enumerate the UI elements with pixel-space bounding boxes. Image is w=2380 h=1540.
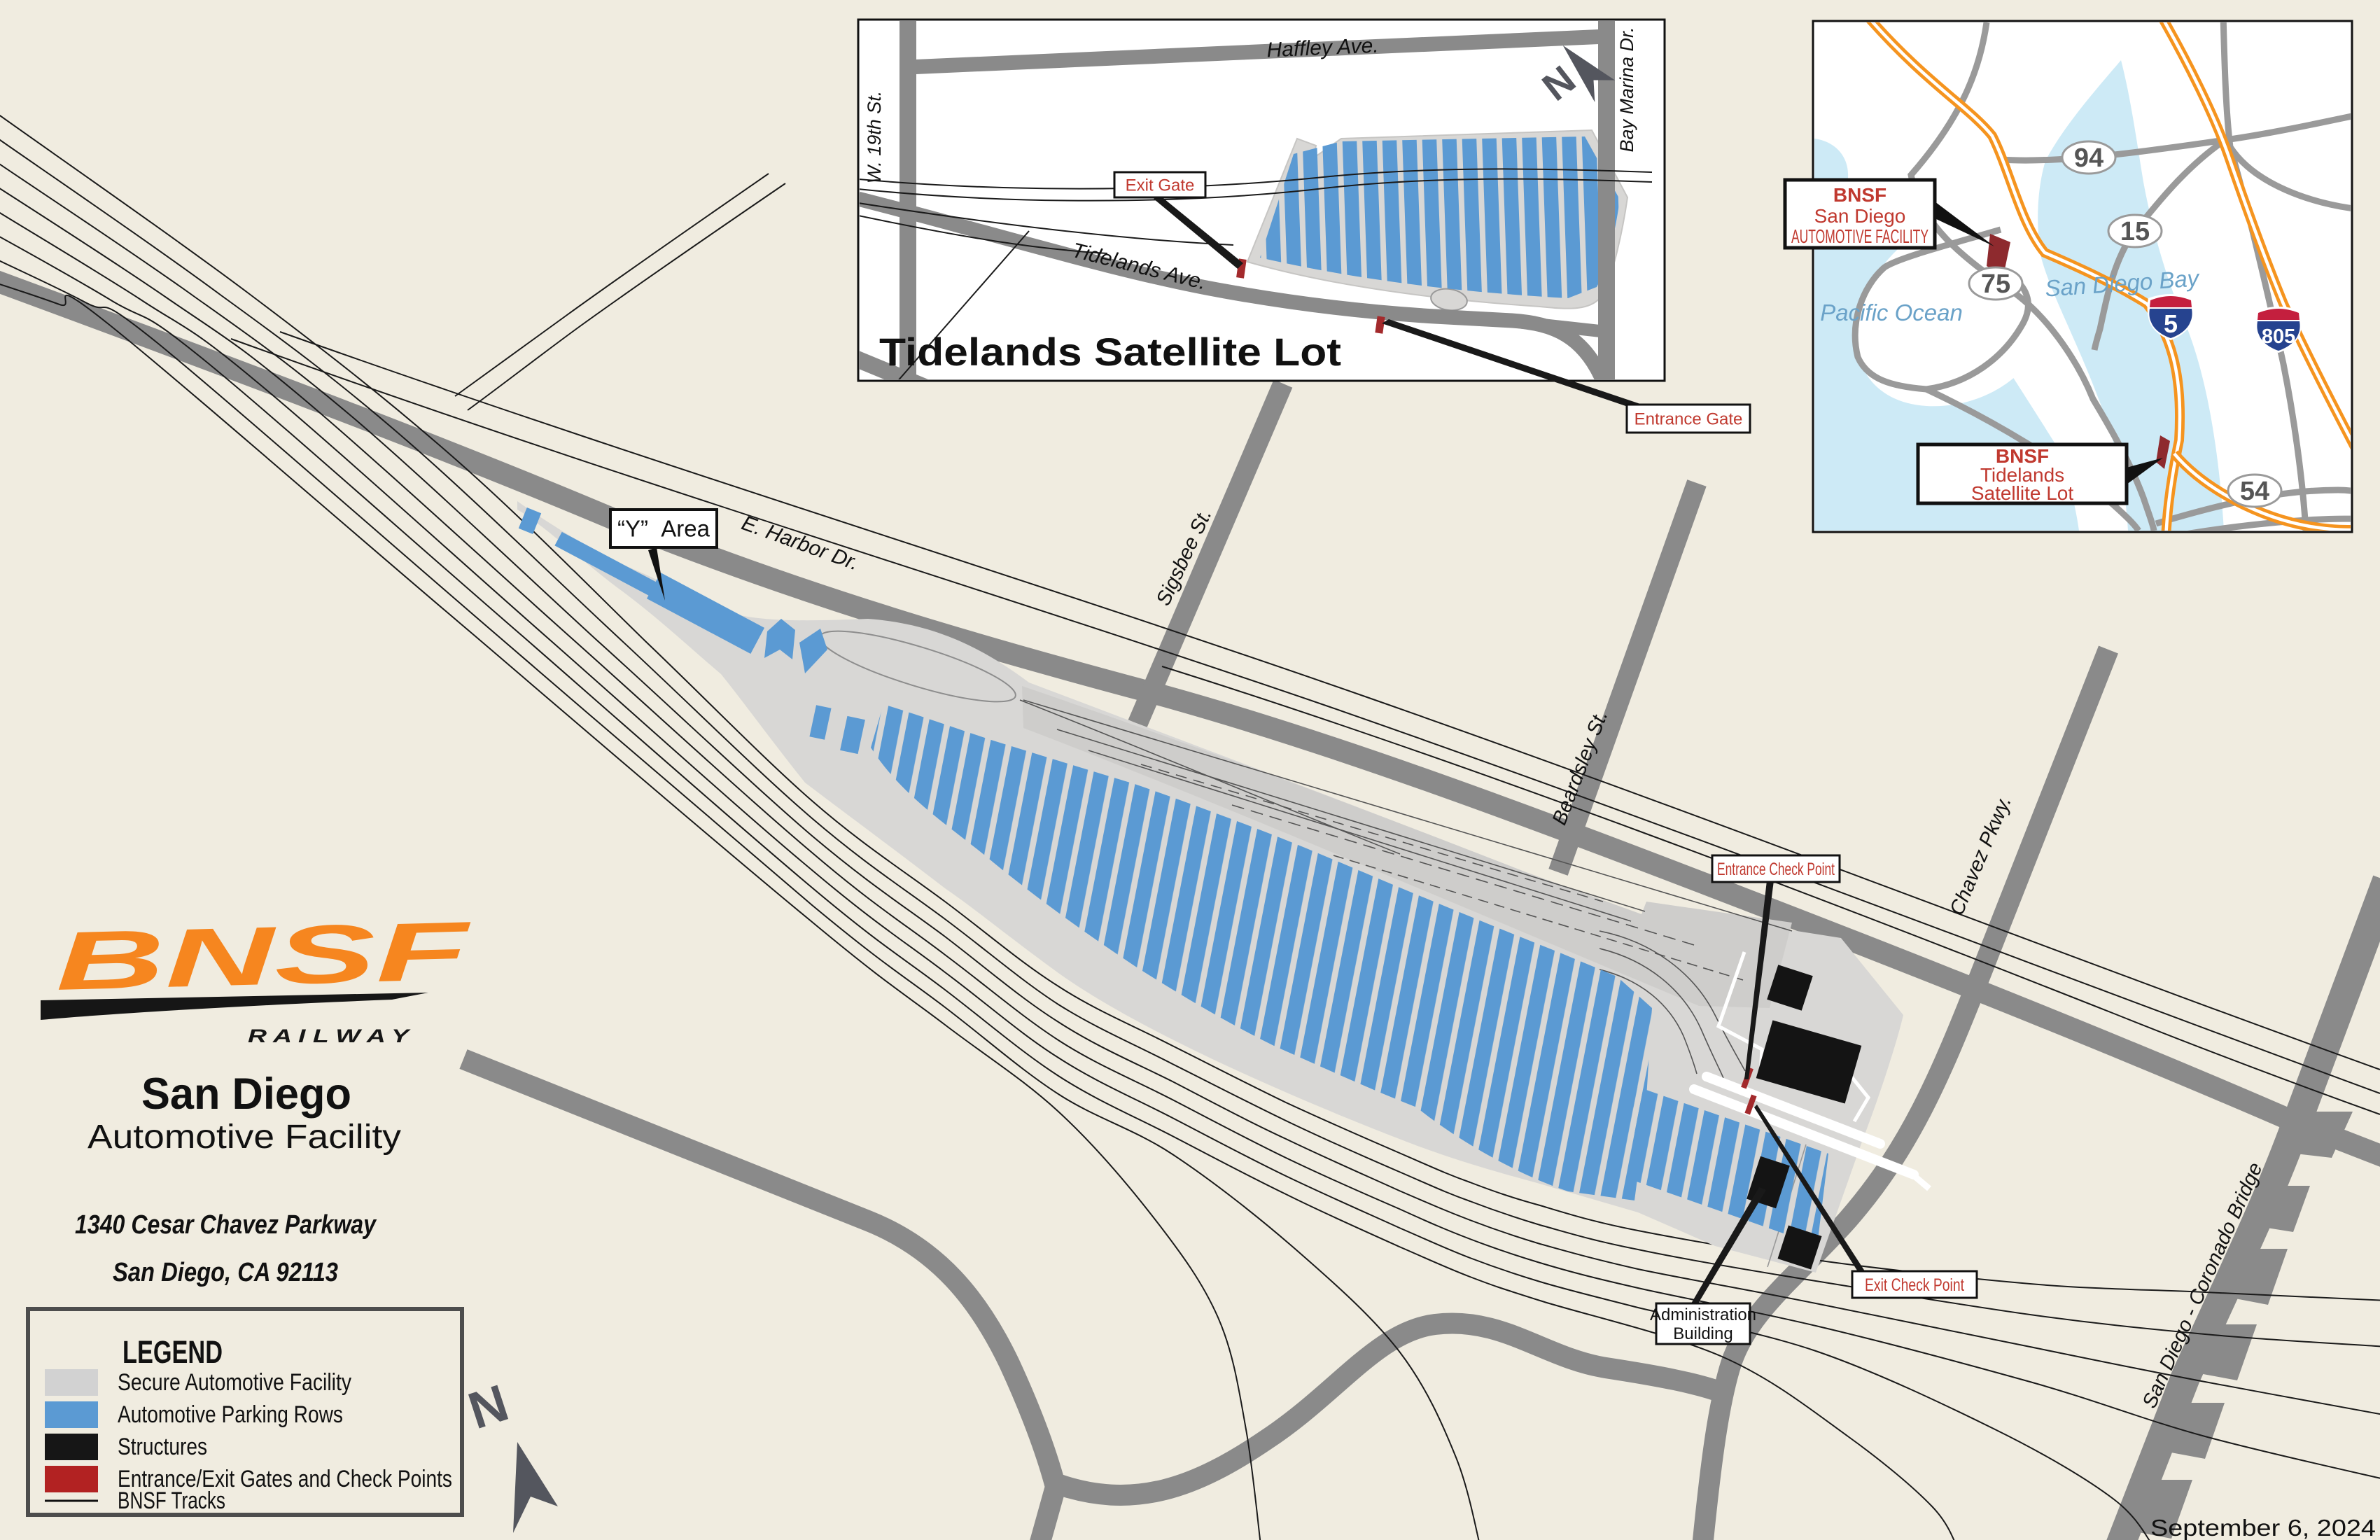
svg-text:Pacific Ocean: Pacific Ocean (1820, 300, 1963, 325)
svg-text:1340 Cesar Chavez Parkway: 1340 Cesar Chavez Parkway (75, 1210, 377, 1240)
svg-text:Building: Building (1673, 1324, 1732, 1343)
svg-text:Entrance Check Point: Entrance Check Point (1717, 860, 1835, 879)
svg-text:Structures: Structures (118, 1434, 207, 1460)
svg-text:Haffley Ave.: Haffley Ave. (1266, 34, 1379, 62)
svg-text:BNSF Tracks: BNSF Tracks (118, 1487, 225, 1514)
svg-text:“Y” Area: “Y” Area (617, 516, 710, 542)
svg-text:5: 5 (2164, 309, 2178, 338)
svg-text:Entrance Gate: Entrance Gate (1634, 409, 1743, 428)
svg-text:Bay Marina Dr.: Bay Marina Dr. (1616, 27, 1637, 152)
svg-text:75: 75 (1981, 269, 2010, 299)
svg-text:San Diego, CA 92113: San Diego, CA 92113 (113, 1258, 338, 1287)
svg-text:Secure Automotive Facility: Secure Automotive Facility (118, 1369, 351, 1396)
svg-text:Exit Gate: Exit Gate (1126, 176, 1195, 195)
svg-text:W. 19th St.: W. 19th St. (864, 91, 885, 184)
svg-text:September 6, 2024: September 6, 2024 (2150, 1515, 2376, 1540)
svg-text:LEGEND: LEGEND (122, 1334, 223, 1370)
svg-text:Automotive Parking Rows: Automotive Parking Rows (118, 1401, 343, 1428)
svg-text:Automotive Facility: Automotive Facility (87, 1119, 401, 1156)
svg-text:94: 94 (2074, 143, 2103, 173)
svg-text:AUTOMOTIVE FACILITY: AUTOMOTIVE FACILITY (1791, 225, 1928, 247)
svg-text:15: 15 (2120, 217, 2150, 246)
svg-text:BNSF: BNSF (54, 904, 473, 1008)
svg-text:San Diego: San Diego (1814, 205, 1906, 227)
svg-text:Satellite Lot: Satellite Lot (1971, 482, 2074, 504)
svg-text:805: 805 (2262, 325, 2295, 348)
svg-text:Tidelands Satellite Lot: Tidelands Satellite Lot (879, 330, 1341, 374)
svg-text:BNSF: BNSF (1833, 184, 1886, 206)
svg-text:54: 54 (2240, 477, 2269, 506)
svg-text:Exit Check Point: Exit Check Point (1865, 1275, 1964, 1295)
svg-text:San Diego: San Diego (141, 1070, 351, 1119)
svg-text:R A I L W A Y: R A I L W A Y (248, 1025, 412, 1046)
svg-text:Administration: Administration (1650, 1305, 1756, 1324)
